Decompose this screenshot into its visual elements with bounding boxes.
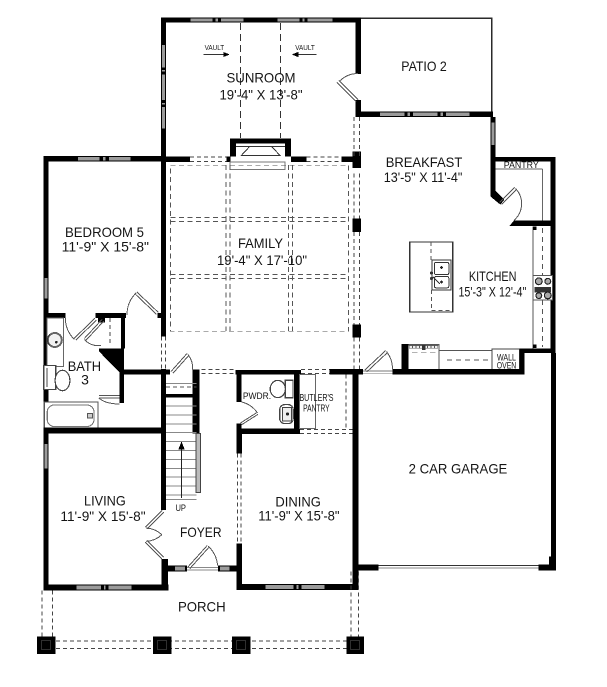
svg-text:PANTRY: PANTRY	[504, 160, 539, 170]
svg-text:13'-5" X 11'-4": 13'-5" X 11'-4"	[384, 169, 463, 185]
svg-text:PATIO 2: PATIO 2	[401, 58, 447, 74]
svg-text:KITCHEN: KITCHEN	[469, 268, 517, 284]
svg-text:11'-9" X 15'-8": 11'-9" X 15'-8"	[258, 508, 339, 524]
svg-text:2 CAR GARAGE: 2 CAR GARAGE	[409, 461, 508, 477]
svg-text:FAMILY: FAMILY	[238, 235, 284, 251]
svg-text:VAULT: VAULT	[295, 43, 315, 52]
svg-text:VAULT: VAULT	[205, 43, 225, 52]
svg-text:19'-4" X 17'-10": 19'-4" X 17'-10"	[217, 252, 307, 268]
svg-text:UP: UP	[175, 503, 186, 514]
svg-text:SUNROOM: SUNROOM	[227, 69, 296, 85]
svg-text:PWDR.: PWDR.	[243, 391, 271, 402]
svg-text:LIVING: LIVING	[84, 492, 126, 508]
svg-text:11'-9" X 15'-8": 11'-9" X 15'-8"	[60, 508, 145, 524]
svg-text:PANTRY: PANTRY	[303, 403, 330, 414]
svg-text:3: 3	[81, 372, 89, 388]
svg-text:FOYER: FOYER	[180, 524, 222, 540]
svg-text:PORCH: PORCH	[178, 599, 226, 615]
svg-text:11'-9" X 15'-8": 11'-9" X 15'-8"	[62, 238, 149, 254]
svg-text:BREAKFAST: BREAKFAST	[386, 154, 463, 170]
svg-text:19'-4" X 13'-8": 19'-4" X 13'-8"	[220, 87, 303, 103]
svg-text:15'-3" X 12'-4": 15'-3" X 12'-4"	[458, 284, 526, 300]
svg-text:BUTLER'S: BUTLER'S	[299, 393, 333, 404]
